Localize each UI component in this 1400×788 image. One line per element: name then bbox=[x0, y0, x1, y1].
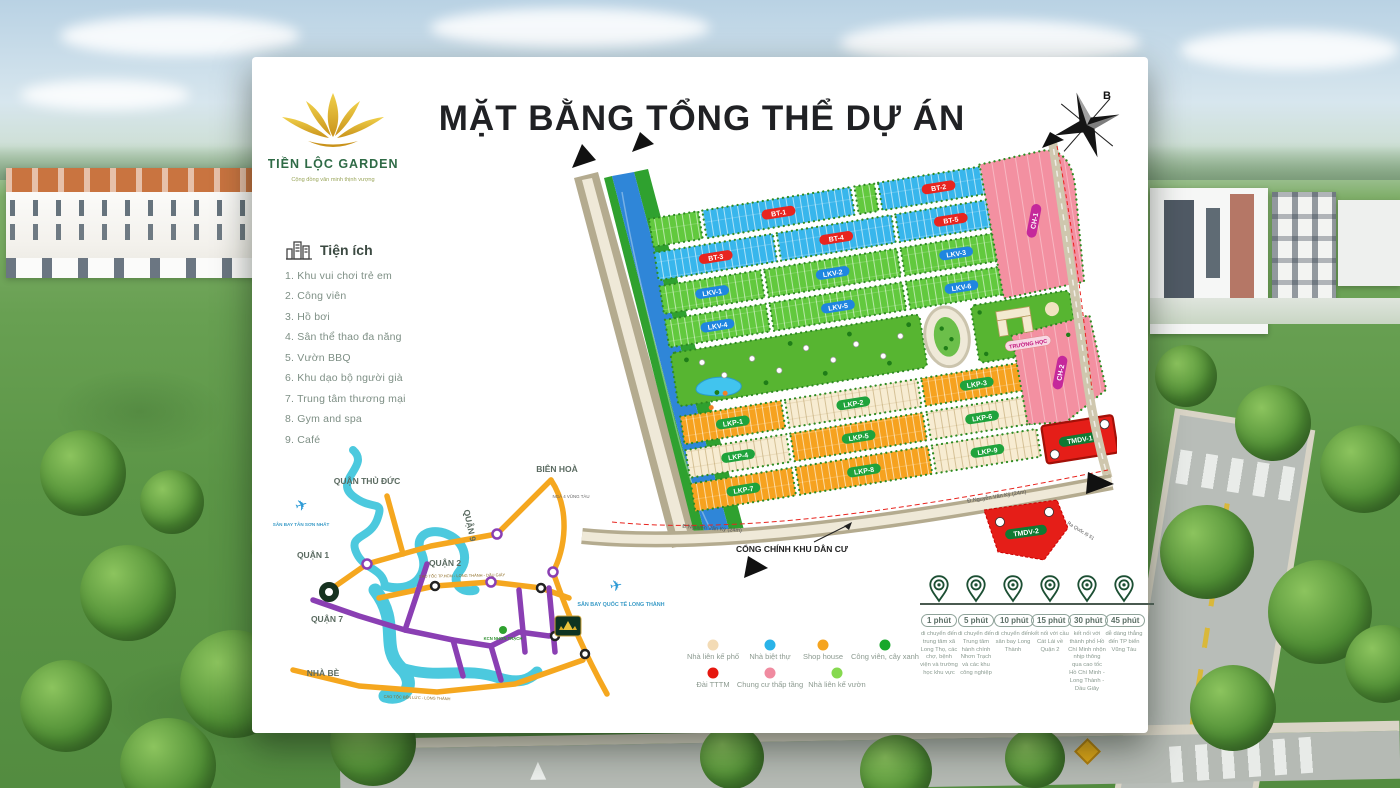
amenity-item: 2. Công viên bbox=[285, 290, 485, 302]
legend-dot bbox=[831, 667, 843, 679]
map-pin-icon bbox=[928, 575, 950, 603]
exit-road-label: Ra Quốc lộ 51 bbox=[1066, 520, 1095, 542]
roundabout bbox=[921, 304, 974, 370]
travel-col-6: 45 phút dễ dàng thẳng đến TP biển Vũng T… bbox=[1105, 577, 1143, 654]
legend-dot bbox=[817, 639, 829, 651]
travel-col-1: 1 phút di chuyển đến trung tâm xã Long T… bbox=[920, 577, 958, 678]
project-logo: TIỀN LỘC GARDEN Cộng đồng văn minh thịnh… bbox=[268, 83, 398, 187]
logo-name: TIỀN LỘC GARDEN bbox=[268, 156, 398, 171]
orange-highways bbox=[293, 480, 607, 694]
travel-time-desc: di chuyển đến trung tâm xã Long Thọ, các… bbox=[920, 631, 958, 678]
tree bbox=[1235, 385, 1311, 461]
map-pin-icon bbox=[1002, 575, 1024, 603]
amenity-item: 7. Trung tâm thương mại bbox=[285, 393, 485, 405]
amenity-item: 4. Sân thể thao đa năng bbox=[285, 331, 485, 343]
travel-col-2: 5 phút di chuyển đến Trung tâm hành chín… bbox=[957, 577, 995, 678]
city-buildings-icon bbox=[285, 239, 313, 261]
district-q1: QUẬN 1 bbox=[297, 549, 329, 560]
road-arrow-marking bbox=[530, 762, 546, 780]
map-pin-icon bbox=[1039, 575, 1061, 603]
amenities-header: Tiện ích bbox=[285, 239, 485, 261]
amenities-panel: Tiện ích 1. Khu vui chơi trẻ em 2. Công … bbox=[285, 239, 485, 446]
amenity-item: 8. Gym and spa bbox=[285, 413, 485, 425]
travel-time-badge: 30 phút bbox=[1068, 614, 1108, 627]
legend-dot bbox=[764, 667, 776, 679]
travel-time-badge: 1 phút bbox=[921, 614, 957, 627]
district-q2: QUẬN 2 bbox=[429, 557, 461, 568]
legend-label: Nhà liên kế vườn bbox=[789, 680, 885, 689]
travel-times-panel: 1 phút di chuyển đến trung tâm xã Long T… bbox=[912, 577, 1162, 707]
map-pin-icon bbox=[1113, 575, 1135, 603]
tree bbox=[20, 660, 112, 752]
townhouse-windows bbox=[10, 224, 260, 240]
commercial-block-2: TMDV-2 bbox=[984, 500, 1068, 560]
legend-dot bbox=[707, 667, 719, 679]
tree bbox=[1005, 728, 1065, 788]
map-pin-icon bbox=[965, 575, 987, 603]
district-thu-duc: QUẬN THỦ ĐỨC bbox=[334, 475, 401, 486]
lotus-icon bbox=[282, 93, 384, 147]
airplane-icon: ✈ bbox=[608, 577, 624, 596]
district-q7: QUẬN 7 bbox=[311, 613, 343, 624]
cloud bbox=[430, 8, 710, 48]
screenshot-canvas: MẶT BẰNG TỔNG THỂ DỰ ÁN TIỀN LỘC GARDEN … bbox=[0, 0, 1400, 788]
travel-time-badge: 5 phút bbox=[958, 614, 994, 627]
district-bien-hoa: BIÊN HOÀ bbox=[536, 463, 578, 474]
amenity-item: 5. Vườn BBQ bbox=[285, 352, 485, 364]
travel-time-desc: di chuyển đến Trung tâm hành chính Nhơn … bbox=[957, 631, 995, 678]
airplane-icon: ✈ bbox=[293, 496, 310, 516]
tree bbox=[140, 470, 204, 534]
tree bbox=[80, 545, 176, 641]
junction-nga4-vung-tau: NGÃ 4 VŨNG TÀU bbox=[552, 494, 589, 499]
tree bbox=[1160, 505, 1254, 599]
cloud bbox=[20, 80, 190, 110]
purple-roads bbox=[313, 564, 573, 680]
location-map: KCN NHƠN TRẠCH ✈ ✈ QUẬN THỦ ĐỨC BIÊN HOÀ… bbox=[267, 440, 687, 715]
tree bbox=[1320, 425, 1400, 513]
amenities-title: Tiện ích bbox=[320, 242, 373, 258]
legend-dot bbox=[879, 639, 891, 651]
travel-time-desc: dễ dàng thẳng đến TP biển Vũng Tàu bbox=[1105, 631, 1143, 654]
amenity-item: 3. Hồ bơi bbox=[285, 311, 485, 323]
travel-col-3: 10 phút di chuyển đến sân bay Long Thành bbox=[994, 577, 1032, 654]
block-grid bbox=[648, 146, 1117, 519]
travel-col-4: 15 phút kết nối với cầu Cát Lái về Quận … bbox=[1031, 577, 1069, 654]
travel-time-badge: 10 phút bbox=[994, 614, 1034, 627]
svg-text:CỔNG CHÍNH KHU DÂN CƯ: CỔNG CHÍNH KHU DÂN CƯ bbox=[736, 543, 849, 554]
masterplan-poster: MẶT BẰNG TỔNG THỂ DỰ ÁN TIỀN LỘC GARDEN … bbox=[252, 57, 1148, 733]
svg-text:KCN NHƠN TRẠCH: KCN NHƠN TRẠCH bbox=[484, 636, 523, 641]
townhouse-windows bbox=[10, 200, 260, 216]
logo-tagline: Cộng đồng văn minh thịnh vượng bbox=[291, 177, 374, 183]
legend-dot bbox=[707, 639, 719, 651]
tree bbox=[1190, 665, 1276, 751]
travel-time-desc: kết nối với cầu Cát Lái về Quận 2 bbox=[1031, 631, 1069, 654]
legend-item: Nhà liên kế vườn bbox=[789, 667, 885, 689]
townhouse-roof bbox=[6, 168, 264, 192]
travel-time-desc: di chuyển đến sân bay Long Thành bbox=[994, 631, 1032, 654]
compass-north-label: B bbox=[1103, 90, 1111, 102]
travel-col-5: 30 phút kết nối với thành phố Hồ Chí Min… bbox=[1068, 577, 1106, 694]
airport-long-thanh: SÂN BAY QUỐC TẾ LONG THÀNH bbox=[577, 601, 664, 608]
travel-time-badge: 45 phút bbox=[1105, 614, 1145, 627]
travel-time-desc: kết nối với thành phố Hồ Chí Minh nhộn n… bbox=[1068, 631, 1106, 694]
tree bbox=[1155, 345, 1217, 407]
green-strip bbox=[854, 183, 878, 214]
project-location-marker bbox=[555, 616, 581, 636]
airport-tan-son-nhat: SÂN BAY TÂN SƠN NHẤT bbox=[273, 521, 330, 527]
tree bbox=[40, 430, 126, 516]
amenity-item: 6. Khu dạo bộ người già bbox=[285, 372, 485, 384]
map-pin-icon bbox=[1076, 575, 1098, 603]
tree bbox=[700, 725, 764, 788]
amenity-item: 1. Khu vui chơi trẻ em bbox=[285, 270, 485, 282]
travel-time-badge: 15 phút bbox=[1031, 614, 1071, 627]
cloud bbox=[60, 16, 300, 56]
district-nha-be: NHÀ BÈ bbox=[307, 668, 340, 678]
cloud bbox=[1180, 30, 1400, 70]
